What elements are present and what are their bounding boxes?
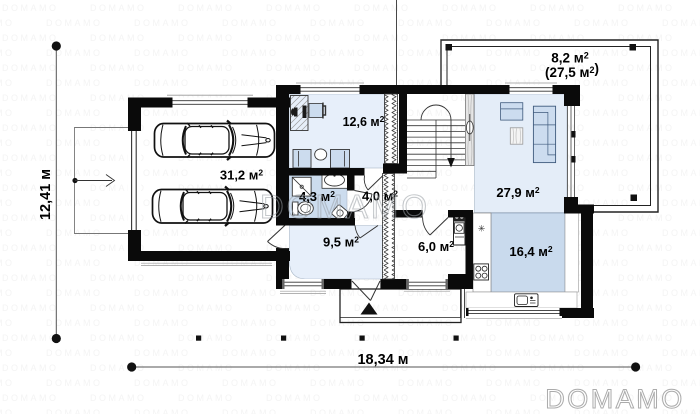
svg-text:12,6 м2: 12,6 м2 bbox=[343, 114, 385, 129]
svg-text:6,0 м2: 6,0 м2 bbox=[418, 239, 454, 254]
svg-text:DOMAMO: DOMAMO bbox=[545, 384, 685, 414]
svg-text:✳: ✳ bbox=[478, 224, 486, 234]
svg-text:27,9 м2: 27,9 м2 bbox=[496, 185, 540, 200]
svg-text:8,2 м2: 8,2 м2 bbox=[551, 51, 589, 66]
svg-text:12,41 м: 12,41 м bbox=[38, 169, 54, 220]
svg-text:18,34 м: 18,34 м bbox=[357, 352, 408, 368]
svg-text:DOMAMO: DOMAMO bbox=[260, 188, 430, 225]
svg-text:9,5 м2: 9,5 м2 bbox=[323, 235, 359, 250]
svg-text:31,2 м2: 31,2 м2 bbox=[220, 168, 264, 183]
svg-text:16,4 м2: 16,4 м2 bbox=[509, 244, 553, 259]
